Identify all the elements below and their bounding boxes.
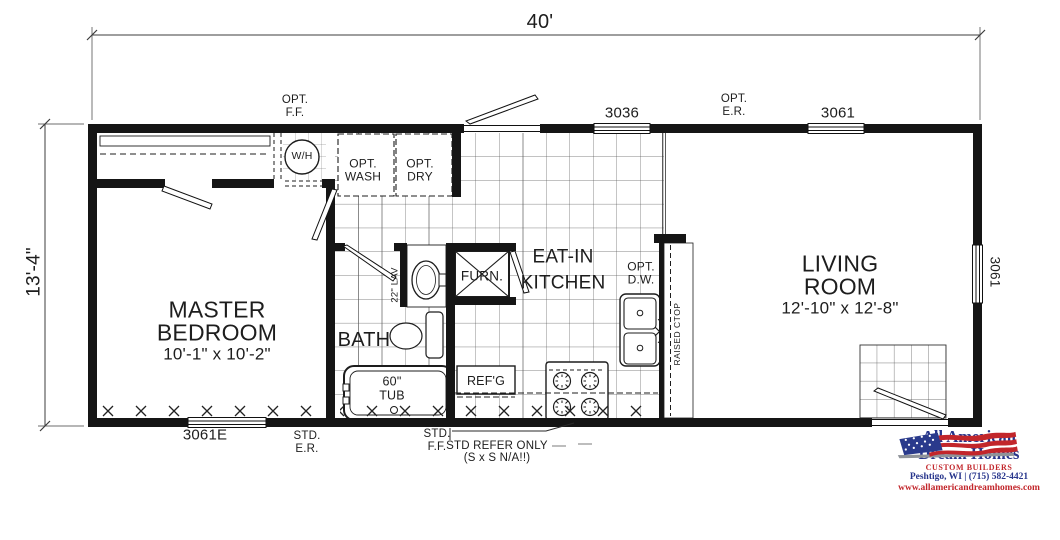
window-3061e-label: 3061E — [183, 428, 227, 445]
counter-edge — [659, 243, 664, 418]
logo-contact: Peshtigo, WI | (715) 582-4421 — [893, 473, 1045, 483]
raised-counter-label: RAISED CTOP — [673, 303, 683, 366]
floor-plan-page: 40' 13'-4" OPT. F.F. 3036 OPT. E.R. 3061… — [0, 0, 1060, 540]
logo-website: www.allamericandreamhomes.com — [893, 484, 1045, 494]
bath-label: BATH — [338, 329, 391, 351]
opt-dryer-label: OPT. DRY — [406, 158, 433, 185]
bedroom-door-leaf — [162, 186, 212, 209]
window-3061-right — [973, 245, 983, 303]
american-flag-icon — [893, 429, 1021, 462]
rear-door-threshold — [464, 126, 540, 132]
entry-tile-grid — [860, 345, 946, 418]
window-3036-label: 3036 — [605, 106, 639, 123]
window-3036 — [594, 124, 650, 134]
living-room-size: 12'-10" x 12'-8" — [781, 298, 898, 317]
tub-faucet2 — [343, 397, 349, 404]
overall-width-dim: 40' — [527, 11, 554, 33]
tub-faucet — [343, 384, 349, 391]
kitchen-label: EAT-IN KITCHEN — [521, 244, 606, 295]
window-3061-top — [808, 124, 864, 134]
front-door-threshold — [872, 420, 948, 426]
closet-shelf — [100, 136, 270, 146]
faint-marks — [552, 444, 592, 446]
refrigerator-label: REF'G — [467, 374, 505, 388]
lavatory-label: 22" LAV — [391, 267, 402, 302]
tub-label: 60" TUB — [379, 375, 405, 403]
rear-door-leaf — [466, 95, 538, 124]
water-heater-label: W/H — [291, 151, 312, 163]
furnace-label: FURN. — [461, 268, 503, 283]
counter-end-wall — [654, 234, 686, 243]
sink-drain-1 — [637, 310, 643, 316]
std-refer-note: STD REFER ONLY (S x S N/A!!) — [446, 440, 548, 464]
closet-divider — [274, 133, 281, 179]
logo-tagline: CUSTOM BUILDERS — [893, 464, 1045, 472]
opt-dishwasher-label: OPT. D.W. — [627, 261, 654, 288]
overall-depth-dim: 13'-4" — [23, 247, 44, 297]
master-bedroom-size: 10'-1" x 10'-2" — [163, 344, 271, 363]
window-3061-top-label: 3061 — [821, 106, 855, 123]
toilet-bowl — [390, 323, 422, 349]
living-room-label: LIVING ROOM — [802, 253, 879, 300]
wh-closet-door — [285, 181, 324, 186]
toilet-tank — [426, 312, 443, 358]
opt-ff-label: OPT. F.F. — [282, 94, 308, 120]
opt-washer-label: OPT. WASH — [345, 158, 381, 185]
lav-sink-basin — [417, 266, 436, 295]
window-3061-right-label: 3061 — [987, 257, 1002, 288]
lav-faucet — [439, 274, 446, 286]
master-bedroom-label: MASTER BEDROOM — [157, 299, 277, 346]
transport-marks — [98, 404, 657, 417]
builder-logo: All American Dream Homes CUSTOM BUILDERS… — [893, 429, 1045, 493]
std-er-label: STD. E.R. — [294, 430, 321, 456]
opt-er-label: OPT. E.R. — [721, 93, 747, 119]
sink-drain-2 — [637, 345, 643, 351]
